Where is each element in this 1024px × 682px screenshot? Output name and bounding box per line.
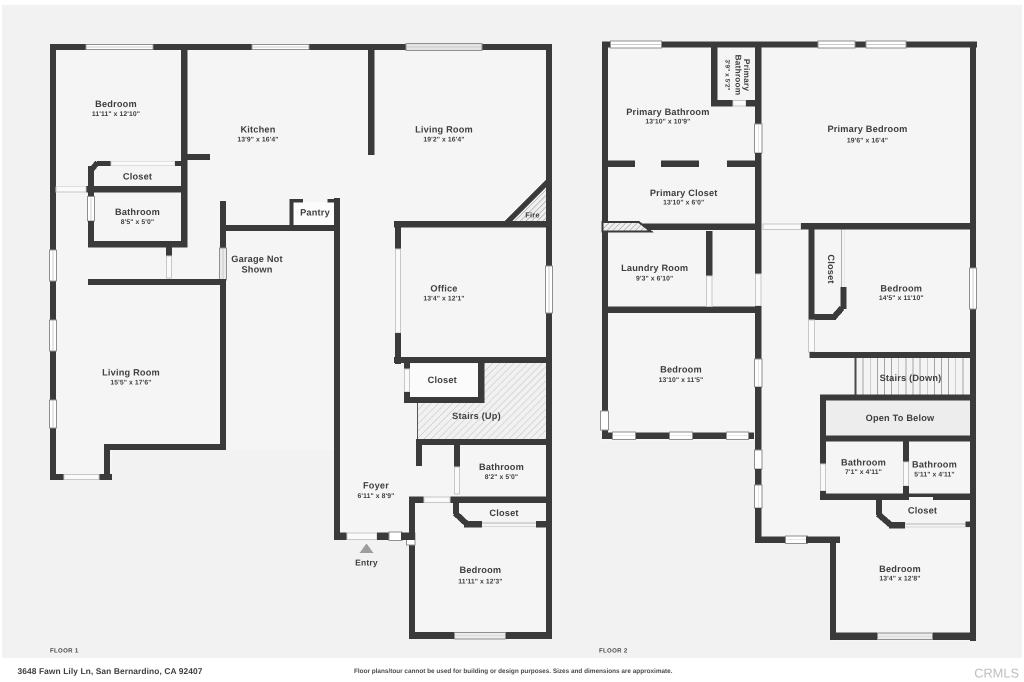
svg-text:Office: Office [430,284,457,294]
svg-text:13'10" x 6'0": 13'10" x 6'0" [663,199,704,206]
svg-text:Closet: Closet [826,254,836,283]
svg-text:Bedroom: Bedroom [880,284,922,294]
svg-text:Closet: Closet [428,375,457,385]
svg-text:Closet: Closet [908,506,937,516]
svg-text:Primary Closet: Primary Closet [650,188,718,198]
svg-text:Bathroom: Bathroom [479,462,524,472]
svg-text:Bedroom: Bedroom [879,564,921,574]
svg-text:Stairs (Down): Stairs (Down) [880,373,942,383]
svg-text:Primary Bathroom: Primary Bathroom [626,107,709,117]
svg-text:Closet: Closet [123,172,152,182]
svg-text:14'5" x 11'10": 14'5" x 11'10" [879,295,924,302]
svg-text:Garage Not: Garage Not [231,254,283,264]
svg-text:Entry: Entry [355,557,378,567]
svg-text:3648 Fawn Lily Ln, San Bernard: 3648 Fawn Lily Ln, San Bernardino, CA 92… [18,666,203,676]
svg-text:Laundry Room: Laundry Room [621,263,688,273]
svg-text:Bathroom: Bathroom [733,55,743,96]
svg-text:FLOOR 2: FLOOR 2 [599,648,628,655]
svg-text:11'11" x 12'3": 11'11" x 12'3" [458,578,502,585]
svg-text:13'4" x 12'8": 13'4" x 12'8" [879,575,920,582]
svg-text:15'5" x 17'6": 15'5" x 17'6" [110,379,151,386]
svg-text:Open To Below: Open To Below [866,413,935,423]
svg-text:8'5" x 5'0": 8'5" x 5'0" [121,219,154,226]
svg-text:7'1" x 4'11": 7'1" x 4'11" [845,469,882,476]
svg-text:11'11" x 12'10": 11'11" x 12'10" [92,111,140,118]
svg-text:3'9" x 5'2": 3'9" x 5'2" [724,59,731,90]
svg-text:Pantry: Pantry [300,208,330,218]
svg-text:Living Room: Living Room [102,368,160,378]
svg-text:Bedroom: Bedroom [460,565,502,575]
svg-text:Floor plans/tour cannot be use: Floor plans/tour cannot be used for buil… [354,668,673,675]
svg-text:13'4" x 12'1": 13'4" x 12'1" [423,295,464,302]
svg-text:CRMLS: CRMLS [974,666,1019,681]
svg-text:Bathroom: Bathroom [841,458,886,468]
svg-text:Living Room: Living Room [415,125,473,135]
svg-text:13'10" x 10'9": 13'10" x 10'9" [645,118,690,125]
svg-text:9'3" x 6'10": 9'3" x 6'10" [636,275,673,282]
svg-text:Bathroom: Bathroom [912,460,957,470]
svg-text:19'2" x 16'4": 19'2" x 16'4" [423,136,464,143]
svg-text:Primary Bedroom: Primary Bedroom [827,124,907,134]
svg-text:13'10" x 11'5": 13'10" x 11'5" [659,377,704,384]
svg-text:Closet: Closet [489,508,518,518]
svg-text:Bedroom: Bedroom [660,365,702,375]
svg-text:13'9" x 16'4": 13'9" x 16'4" [237,136,278,143]
svg-text:Kitchen: Kitchen [240,125,275,135]
svg-text:Bedroom: Bedroom [95,99,137,109]
svg-text:8'2" x 5'0": 8'2" x 5'0" [485,474,518,481]
svg-text:Stairs (Up): Stairs (Up) [452,411,501,421]
svg-text:FLOOR 1: FLOOR 1 [50,648,79,655]
svg-text:Bathroom: Bathroom [115,207,160,217]
svg-text:5'11" x 4'11": 5'11" x 4'11" [914,471,954,478]
svg-text:19'6" x 16'4": 19'6" x 16'4" [847,137,888,144]
svg-text:Foyer: Foyer [363,481,389,491]
svg-text:6'11" x 8'9": 6'11" x 8'9" [358,493,395,500]
svg-text:Fire: Fire [525,211,540,220]
svg-text:Shown: Shown [241,265,272,275]
